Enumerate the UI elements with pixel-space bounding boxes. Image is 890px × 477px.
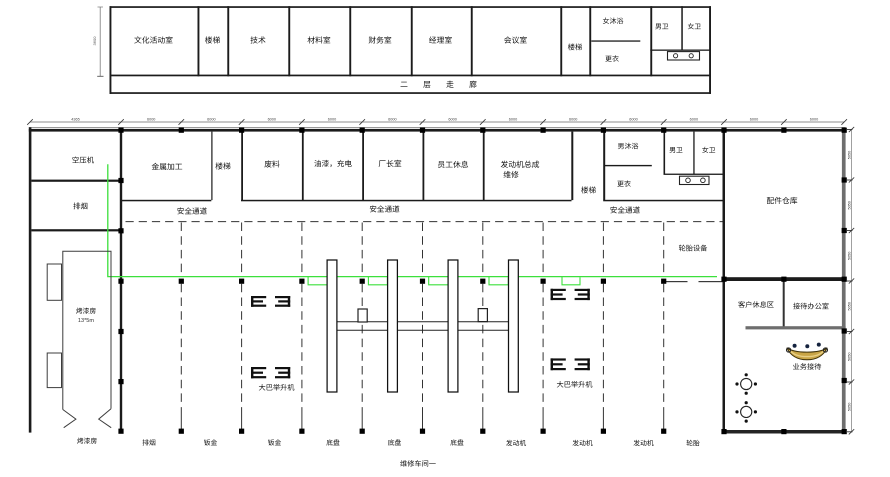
- svg-text:6000: 6000: [207, 118, 215, 122]
- svg-text:5050: 5050: [848, 201, 852, 209]
- svg-text:6000: 6000: [147, 118, 155, 122]
- svg-text:5050: 5050: [848, 252, 852, 260]
- svg-text:5050: 5050: [848, 151, 852, 159]
- svg-text:3600: 3600: [92, 36, 97, 46]
- svg-text:6000: 6000: [750, 118, 758, 122]
- svg-text:5050: 5050: [848, 302, 852, 310]
- svg-text:6000: 6000: [268, 118, 276, 122]
- svg-text:4365: 4365: [71, 118, 79, 122]
- svg-text:5050: 5050: [848, 403, 852, 411]
- svg-text:6000: 6000: [810, 118, 818, 122]
- svg-text:6000: 6000: [509, 118, 517, 122]
- svg-text:13*5m: 13*5m: [78, 318, 95, 324]
- svg-text:6000: 6000: [388, 118, 396, 122]
- svg-text:6000: 6000: [448, 118, 456, 122]
- svg-text:6000: 6000: [690, 118, 698, 122]
- svg-text:6000: 6000: [629, 118, 637, 122]
- svg-text:6000: 6000: [328, 118, 336, 122]
- svg-text:5050: 5050: [848, 352, 852, 360]
- svg-text:6000: 6000: [569, 118, 577, 122]
